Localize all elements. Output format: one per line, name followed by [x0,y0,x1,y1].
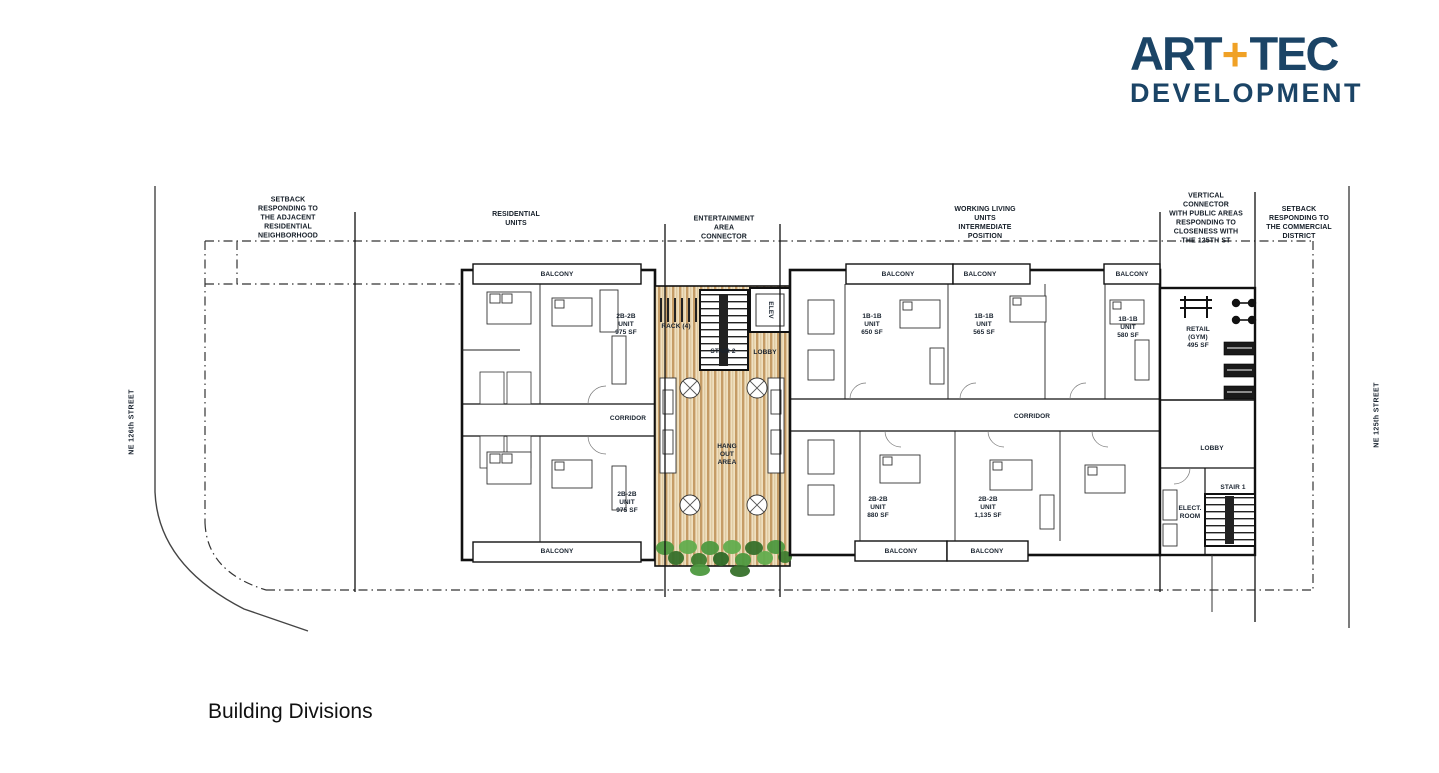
stair-1-label: STAIR 1 [1219,484,1246,492]
slide-caption: Building Divisions [208,700,373,724]
slide-building-divisions: ART+TEC DEVELOPMENT SETBACK RESPONDING T… [0,0,1439,773]
rack-label: RACK (4) [661,323,690,331]
elect-room-label: ELECT. ROOM [1179,505,1202,521]
balcony-label-top-3: BALCONY [1116,271,1149,279]
balcony-label-top-2: BALCONY [964,271,997,279]
unit-label-2b2b-975-bottom: 2B-2B UNIT 975 SF [616,491,638,515]
street-label-right: NE 125th STREET [1374,382,1381,448]
lobby-label-right: LOBBY [1200,445,1223,453]
company-logo: ART+TEC DEVELOPMENT [1130,30,1380,107]
stair-1 [1205,494,1255,546]
hang-out-area-label: HANG OUT AREA [717,443,737,467]
zone-entertainment-connector: ENTERTAINMENT AREA CONNECTOR [694,214,755,241]
unit-label-2b2b-880: 2B-2B UNIT 880 SF [867,496,889,520]
balcony-label-bottom-left: BALCONY [541,548,574,556]
unit-label-1b1b-580: 1B-1B UNIT 580 SF [1117,316,1139,340]
zone-setback-commercial: SETBACK RESPONDING TO THE COMMERCIAL DIS… [1266,205,1332,241]
stair-2 [700,290,748,370]
unit-label-1b1b-565: 1B-1B UNIT 565 SF [973,313,995,337]
floor-plan-linework [0,0,1439,773]
stair-2-label: STAIR 2 [710,348,735,356]
elevator-label: ELEV [766,301,774,318]
balcony-label-top-1: BALCONY [882,271,915,279]
zone-residential-units: RESIDENTIAL UNITS [492,210,540,228]
balcony-label-bottom-1: BALCONY [885,548,918,556]
lobby-label-middle: LOBBY [753,349,776,357]
unit-label-2b2b-1135: 2B-2B UNIT 1,135 SF [974,496,1001,520]
zone-vertical-connector: VERTICAL CONNECTOR WITH PUBLIC AREAS RES… [1169,192,1243,247]
logo-word-tec: TEC [1249,30,1337,77]
logo-word-development: DEVELOPMENT [1130,80,1380,107]
balcony-label-top-left: BALCONY [541,271,574,279]
unit-label-1b1b-650: 1B-1B UNIT 650 SF [861,313,883,337]
retail-gym-label: RETAIL (GYM) 495 SF [1186,326,1210,350]
corridor-label-right: CORRIDOR [1014,413,1050,421]
unit-label-2b2b-975-top: 2B-2B UNIT 975 SF [615,313,637,337]
corridor-label-left: CORRIDOR [610,415,646,423]
left-building [462,264,655,562]
zone-working-living: WORKING LIVING UNITS INTERMEDIATE POSITI… [954,205,1015,241]
zone-setback-residential: SETBACK RESPONDING TO THE ADJACENT RESID… [258,195,318,240]
logo-line-arttec: ART+TEC [1130,30,1380,77]
logo-plus-icon: + [1222,31,1249,77]
street-label-left: NE 126th STREET [129,389,136,455]
logo-word-art: ART [1130,30,1221,77]
balcony-label-bottom-2: BALCONY [971,548,1004,556]
